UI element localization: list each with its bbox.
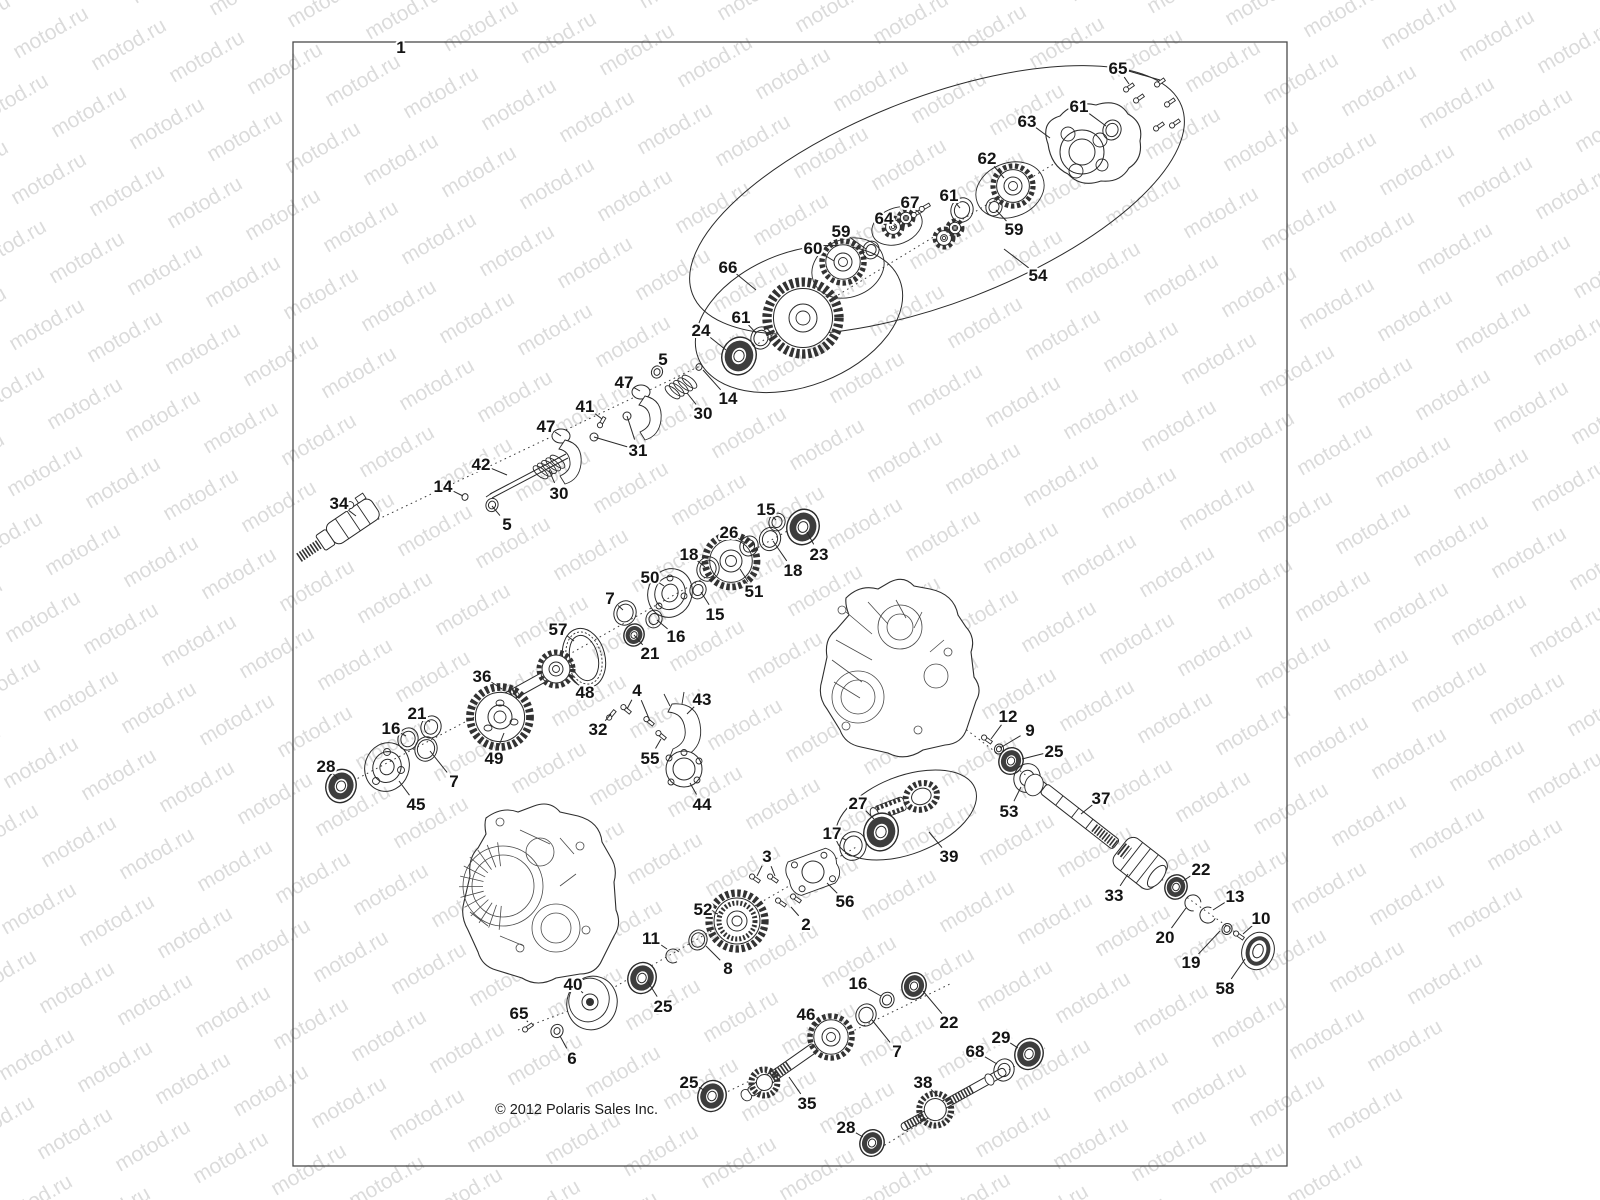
watermark-text: motod.ru (0, 507, 46, 568)
watermark-text: motod.ru (1215, 407, 1298, 468)
watermark-text: motod.ru (233, 768, 316, 829)
watermark-text: motod.ru (1331, 498, 1414, 559)
watermark-text: motod.ru (1167, 1058, 1250, 1119)
watermark-text: motod.ru (823, 493, 906, 554)
watermark-text: motod.ru (37, 811, 120, 872)
watermark-text: motod.ru (931, 1168, 1014, 1200)
watermark-text: motod.ru (981, 371, 1064, 432)
watermark-text: motod.ru (1051, 967, 1134, 1028)
watermark-text: motod.ru (425, 1017, 508, 1078)
watermark-text: motod.ru (1443, 881, 1526, 942)
watermark-text: motod.ru (1371, 431, 1454, 492)
watermark-text: motod.ru (1207, 991, 1290, 1052)
part-label-1: 1 (396, 38, 405, 57)
part-label-5: 5 (658, 350, 667, 369)
watermark-text: motod.ru (1061, 237, 1144, 298)
watermark-text: motod.ru (947, 0, 1030, 61)
watermark-text: motod.ru (1013, 888, 1096, 949)
watermark-text: motod.ru (125, 93, 208, 154)
part-label-16: 16 (382, 719, 401, 738)
watermark-text: motod.ru (0, 653, 44, 714)
watermark-text: motod.ru (229, 1060, 312, 1121)
part-label-51: 51 (745, 582, 764, 601)
watermark-text: motod.ru (907, 67, 990, 128)
watermark-text: motod.ru (1129, 979, 1212, 1040)
watermark-text: motod.ru (1405, 802, 1488, 863)
watermark-text: motod.ru (71, 1182, 154, 1200)
watermark-text: motod.ru (1295, 273, 1378, 334)
watermark-text: motod.ru (201, 251, 284, 312)
watermark-text: motod.ru (1065, 0, 1148, 6)
watermark-text: motod.ru (0, 945, 40, 1006)
watermark-text: motod.ru (35, 957, 118, 1018)
watermark-text: motod.ru (1055, 675, 1138, 736)
part-label-18: 18 (784, 561, 803, 580)
watermark-text: motod.ru (1377, 0, 1460, 54)
watermark-text: motod.ru (39, 665, 122, 726)
watermark-text: motod.ru (1373, 285, 1456, 346)
gearcase-left (459, 804, 619, 983)
watermark-text: motod.ru (1025, 12, 1108, 73)
watermark-text: motod.ru (0, 732, 82, 793)
part-label-47: 47 (615, 373, 634, 392)
part-label-67: 67 (901, 193, 920, 212)
watermark-text: motod.ru (1017, 596, 1100, 657)
watermark-text: motod.ru (0, 1170, 76, 1200)
part-label-26: 26 (720, 523, 739, 542)
watermark-text: motod.ru (1563, 680, 1600, 741)
leader-line (1171, 908, 1186, 928)
watermark-text: motod.ru (863, 426, 946, 487)
gearcase-right (820, 579, 979, 757)
watermark-text: motod.ru (1285, 1003, 1368, 1064)
part-label-52: 52 (694, 900, 713, 919)
part-label-47: 47 (537, 417, 556, 436)
watermark-text: motod.ru (581, 1041, 664, 1102)
watermark-text: motod.ru (667, 469, 750, 530)
watermark-text: motod.ru (77, 744, 160, 805)
part-label-16: 16 (849, 974, 868, 993)
watermark-text: motod.ru (119, 531, 202, 592)
part-label-2: 2 (801, 915, 810, 934)
watermark-text: motod.ru (935, 876, 1018, 937)
part-label-21: 21 (408, 704, 427, 723)
watermark-text: motod.ru (1483, 814, 1566, 875)
part-label-62: 62 (978, 149, 997, 168)
watermark-text: motod.ru (1257, 194, 1340, 255)
watermark-text: motod.ru (507, 737, 590, 798)
watermark-text: motod.ru (237, 476, 320, 537)
watermark-text: motod.ru (1143, 0, 1226, 18)
watermark-text: motod.ru (155, 756, 238, 817)
parts-diagram-page: motod.rumotod.rumotod.rumotod.rumotod.ru… (0, 0, 1600, 1200)
leader-line (594, 437, 627, 447)
part-label-55: 55 (641, 749, 660, 768)
watermark-text: motod.ru (9, 2, 92, 63)
watermark-text: motod.ru (1445, 735, 1528, 796)
watermark-text: motod.ru (1097, 462, 1180, 523)
watermark-text: motod.ru (1567, 388, 1600, 449)
watermark-text: motod.ru (865, 280, 948, 341)
watermark-text: motod.ru (855, 1010, 938, 1071)
exploded-parts-diagram: motod.rumotod.rumotod.rumotod.rumotod.ru… (0, 0, 1600, 1200)
watermark-text: motod.ru (231, 914, 314, 975)
watermark-text: motod.ru (513, 299, 596, 360)
watermark-text: motod.ru (1335, 206, 1418, 267)
watermark-text: motod.ru (775, 1144, 858, 1200)
watermark-text: motod.ru (159, 464, 242, 525)
watermark-text: motod.ru (1, 586, 84, 647)
watermark-text: motod.ru (589, 457, 672, 518)
watermark-text: motod.ru (1367, 723, 1450, 784)
watermark-text: motod.ru (161, 318, 244, 379)
watermark-text: motod.ru (85, 160, 168, 221)
watermark-text: motod.ru (477, 74, 560, 135)
part-label-39: 39 (940, 847, 959, 866)
watermark-text: motod.ru (971, 1101, 1054, 1162)
watermark-text: motod.ru (357, 275, 440, 336)
part-label-63: 63 (1018, 112, 1037, 131)
watermark-text: motod.ru (345, 1151, 428, 1200)
watermark-text: motod.ru (1453, 151, 1536, 212)
watermark-text: motod.ru (501, 1175, 584, 1200)
leader-line (855, 1133, 863, 1137)
watermark-text: motod.ru (79, 598, 162, 659)
watermark-text: motod.ru (1209, 845, 1292, 906)
watermark-text: motod.ru (0, 361, 48, 422)
watermark-text: motod.ru (47, 81, 130, 142)
part-label-42: 42 (472, 455, 491, 474)
watermark-text: motod.ru (1527, 455, 1600, 516)
part-label-37: 37 (1092, 789, 1111, 808)
watermark-text: motod.ru (1009, 1180, 1092, 1200)
watermark-text: motod.ru (1333, 352, 1416, 413)
watermark-text: motod.ru (1411, 364, 1494, 425)
watermark-text: motod.ru (703, 694, 786, 755)
watermark-text: motod.ru (1297, 127, 1380, 188)
watermark-text: motod.ru (979, 517, 1062, 578)
part-label-4: 4 (632, 681, 642, 700)
watermark-text: motod.ru (701, 840, 784, 901)
part-label-30: 30 (550, 484, 569, 503)
part-label-34: 34 (330, 494, 349, 513)
leader-line (567, 636, 574, 641)
watermark-text: motod.ru (1021, 304, 1104, 365)
watermark-text: motod.ru (321, 50, 404, 111)
watermark-text: motod.ru (901, 505, 984, 566)
watermark-text: motod.ru (1219, 115, 1302, 176)
watermark-text: motod.ru (579, 1187, 662, 1200)
part-label-24: 24 (692, 321, 711, 340)
part-label-3: 3 (762, 847, 771, 866)
watermark-text: motod.ru (197, 543, 280, 604)
watermark-text: motod.ru (1249, 778, 1332, 839)
part-label-68: 68 (966, 1042, 985, 1061)
part-label-12: 12 (999, 707, 1018, 726)
watermark-text: motod.ru (1217, 261, 1300, 322)
watermark-text: motod.ru (33, 1103, 116, 1164)
watermark-text: motod.ru (0, 1091, 38, 1152)
watermark-text: motod.ru (1289, 711, 1372, 772)
part-label-48: 48 (576, 683, 595, 702)
part-label-18: 18 (680, 545, 699, 564)
part-label-7: 7 (605, 589, 614, 608)
watermark-text: motod.ru (0, 215, 50, 276)
part-label-28: 28 (317, 757, 336, 776)
part-label-15: 15 (706, 605, 725, 624)
part-label-56: 56 (836, 892, 855, 911)
watermark-text: motod.ru (983, 225, 1066, 286)
watermark-text: motod.ru (391, 646, 474, 707)
watermark-text: motod.ru (283, 0, 366, 32)
watermark-text: motod.ru (399, 62, 482, 123)
watermark-text: motod.ru (0, 69, 52, 130)
watermark-text: motod.ru (313, 634, 396, 695)
leader-line (706, 946, 720, 960)
watermark-text: motod.ru (189, 1127, 272, 1188)
watermark-text: motod.ru (1173, 620, 1256, 681)
watermark-text: motod.ru (829, 55, 912, 116)
watermark-text: motod.ru (741, 773, 824, 834)
leader-line (868, 988, 881, 996)
watermark-text: motod.ru (1127, 1125, 1210, 1186)
watermark-text: motod.ru (269, 993, 352, 1054)
part-label-7: 7 (449, 772, 458, 791)
watermark-text: motod.ru (1413, 218, 1496, 279)
watermark-text: motod.ru (1525, 601, 1600, 662)
leader-line (627, 700, 632, 709)
watermark-text: motod.ru (1089, 1046, 1172, 1107)
part-label-6: 6 (567, 1049, 576, 1068)
watermark-text: motod.ru (1533, 17, 1600, 78)
watermark-text: motod.ru (825, 347, 908, 408)
part-label-16: 16 (667, 627, 686, 646)
part-label-22: 22 (940, 1013, 959, 1032)
part-label-29: 29 (992, 1028, 1011, 1047)
watermark-text: motod.ru (45, 227, 128, 288)
watermark-text: motod.ru (163, 172, 246, 233)
watermark-text: motod.ru (1177, 328, 1260, 389)
part-label-28: 28 (837, 1118, 856, 1137)
watermark-text: motod.ru (1407, 656, 1490, 717)
watermark-text: motod.ru (557, 0, 640, 1)
watermark-text: motod.ru (631, 244, 714, 305)
watermark-text: motod.ru (349, 859, 432, 920)
watermark-text: motod.ru (1569, 242, 1600, 303)
watermark-text: motod.ru (1369, 577, 1452, 638)
watermark-text: motod.ru (355, 421, 438, 482)
part-label-44: 44 (693, 795, 712, 814)
watermark-text: motod.ru (1323, 1082, 1406, 1143)
part-label-31: 31 (629, 441, 648, 460)
watermark-text: motod.ru (153, 902, 236, 963)
watermark-text: motod.ru (81, 452, 164, 513)
watermark-text: motod.ru (1447, 589, 1530, 650)
watermark-text: motod.ru (1171, 766, 1254, 827)
watermark-text: motod.ru (1565, 534, 1600, 595)
watermark-text: motod.ru (1181, 36, 1264, 97)
part-label-33: 33 (1105, 886, 1124, 905)
watermark-text: motod.ru (713, 0, 796, 25)
watermark-text: motod.ru (1135, 541, 1218, 602)
part-label-8: 8 (723, 959, 732, 978)
watermark-text: motod.ru (903, 359, 986, 420)
watermark-text: motod.ru (743, 627, 826, 688)
part-label-11: 11 (642, 929, 660, 948)
copyright-text: © 2012 Polaris Sales Inc. (495, 1102, 658, 1118)
watermark-text: motod.ru (1253, 486, 1336, 547)
part-label-53: 53 (1000, 802, 1019, 821)
watermark-text: motod.ru (1485, 668, 1568, 729)
leader-line (399, 781, 409, 795)
watermark-text: motod.ru (1375, 139, 1458, 200)
watermark-text: motod.ru (471, 512, 554, 573)
watermark-text: motod.ru (385, 1084, 468, 1145)
watermark-text: motod.ru (199, 397, 282, 458)
part-label-22: 22 (1192, 860, 1211, 879)
watermark-text: motod.ru (439, 0, 522, 56)
watermark-text: motod.ru (1019, 450, 1102, 511)
watermark-text: motod.ru (87, 14, 170, 75)
watermark-text: motod.ru (1365, 869, 1448, 930)
watermark-text: motod.ru (1221, 0, 1304, 30)
watermark-text: motod.ru (347, 1005, 430, 1066)
part-label-54: 54 (1029, 266, 1048, 285)
watermark-text: motod.ru (1059, 383, 1142, 444)
part-label-36: 36 (473, 667, 492, 686)
watermark-text: motod.ru (195, 689, 278, 750)
part-label-58: 58 (1216, 979, 1235, 998)
watermark-text: motod.ru (203, 105, 286, 166)
part-label-20: 20 (1156, 928, 1175, 947)
part-label-7: 7 (892, 1042, 901, 1061)
watermark-text: motod.ru (267, 1139, 350, 1200)
watermark-text: motod.ru (1487, 522, 1570, 583)
leader-line (1120, 874, 1128, 886)
watermark-text: motod.ru (1099, 316, 1182, 377)
leader-line (656, 739, 661, 748)
watermark-text: motod.ru (1327, 790, 1410, 851)
part-label-61: 61 (940, 186, 959, 205)
watermark-text: motod.ru (1415, 72, 1498, 133)
watermark-text: motod.ru (7, 148, 90, 209)
part-label-25: 25 (654, 997, 673, 1016)
watermark-text: motod.ru (553, 232, 636, 293)
watermark-text: motod.ru (1325, 936, 1408, 997)
part-label-35: 35 (798, 1094, 817, 1113)
watermark-text: motod.ru (359, 129, 442, 190)
watermark-text: motod.ru (165, 26, 248, 87)
watermark-text: motod.ru (121, 385, 204, 446)
part-label-25: 25 (680, 1073, 699, 1092)
part-label-57: 57 (549, 620, 568, 639)
part-label-21: 21 (641, 644, 660, 663)
watermark-text: motod.ru (235, 622, 318, 683)
watermark-text: motod.ru (115, 823, 198, 884)
part-label-23: 23 (810, 545, 829, 564)
watermark-text: motod.ru (619, 1120, 702, 1181)
watermark-text: motod.ru (1139, 249, 1222, 310)
watermark-text: motod.ru (1493, 84, 1576, 145)
watermark-text: motod.ru (73, 1036, 156, 1097)
watermark-text: motod.ru (857, 864, 940, 925)
leader-line (1129, 71, 1160, 80)
watermark-text: motod.ru (241, 184, 324, 245)
watermark-text: motod.ru (279, 263, 362, 324)
watermark-text: motod.ru (1299, 0, 1382, 42)
watermark-text: motod.ru (127, 0, 210, 8)
watermark-text: motod.ru (393, 500, 476, 561)
watermark-text: motod.ru (1095, 608, 1178, 669)
watermark-text: motod.ru (1283, 1149, 1366, 1200)
leader-line (984, 1057, 997, 1064)
part-label-43: 43 (693, 690, 712, 709)
watermark-text: motod.ru (307, 1072, 390, 1133)
part-label-59: 59 (832, 222, 851, 241)
watermark-text: motod.ru (191, 981, 274, 1042)
watermark-text: motod.ru (1449, 443, 1532, 504)
watermark-text: motod.ru (1179, 182, 1262, 243)
watermark-text: motod.ru (941, 438, 1024, 499)
part-label-5: 5 (502, 515, 511, 534)
part-label-25: 25 (1045, 742, 1064, 761)
part-label-38: 38 (914, 1073, 933, 1092)
watermark-text: motod.ru (1293, 419, 1376, 480)
watermark-text: motod.ru (1363, 1015, 1446, 1076)
watermark-text: motod.ru (977, 663, 1060, 724)
part-label-14: 14 (719, 389, 738, 408)
watermark-text: motod.ru (41, 519, 124, 580)
watermark-text: motod.ru (707, 402, 790, 463)
part-label-64: 64 (875, 209, 894, 228)
watermark-text: motod.ru (633, 98, 716, 159)
watermark-text: motod.ru (595, 19, 678, 80)
watermark-text: motod.ru (123, 239, 206, 300)
watermark-text: motod.ru (423, 1163, 506, 1200)
watermark-text: motod.ru (151, 1048, 234, 1109)
leader-line (703, 370, 721, 390)
watermark-text: motod.ru (549, 524, 632, 585)
watermark-text: motod.ru (785, 414, 868, 475)
watermark-text: motod.ru (387, 938, 470, 999)
watermark-text: motod.ru (353, 567, 436, 628)
watermark-text: motod.ru (1571, 96, 1600, 157)
leader-line (453, 491, 463, 496)
watermark-text: motod.ru (113, 969, 196, 1030)
watermark-text: motod.ru (1205, 1137, 1288, 1198)
watermark-text: motod.ru (277, 409, 360, 470)
part-label-32: 32 (589, 720, 608, 739)
part-label-59: 59 (1005, 220, 1024, 239)
watermark-text: motod.ru (515, 153, 598, 214)
leader-line (491, 468, 507, 475)
watermark-text: motod.ru (475, 220, 558, 281)
watermark-text: motod.ru (1049, 1113, 1132, 1174)
watermark-text: motod.ru (867, 134, 950, 195)
watermark-text: motod.ru (697, 1132, 780, 1193)
part-label-14: 14 (434, 477, 453, 496)
watermark-text: motod.ru (815, 1077, 898, 1138)
leader-line (492, 506, 500, 516)
watermark-text: motod.ru (83, 306, 166, 367)
watermark-text: motod.ru (0, 878, 80, 939)
watermark-text: motod.ru (117, 677, 200, 738)
watermark-text: motod.ru (435, 287, 518, 348)
watermark-text: motod.ru (1403, 948, 1486, 1009)
watermark-text: motod.ru (3, 440, 86, 501)
watermark-text: motod.ru (389, 792, 472, 853)
part-label-66: 66 (719, 258, 738, 277)
